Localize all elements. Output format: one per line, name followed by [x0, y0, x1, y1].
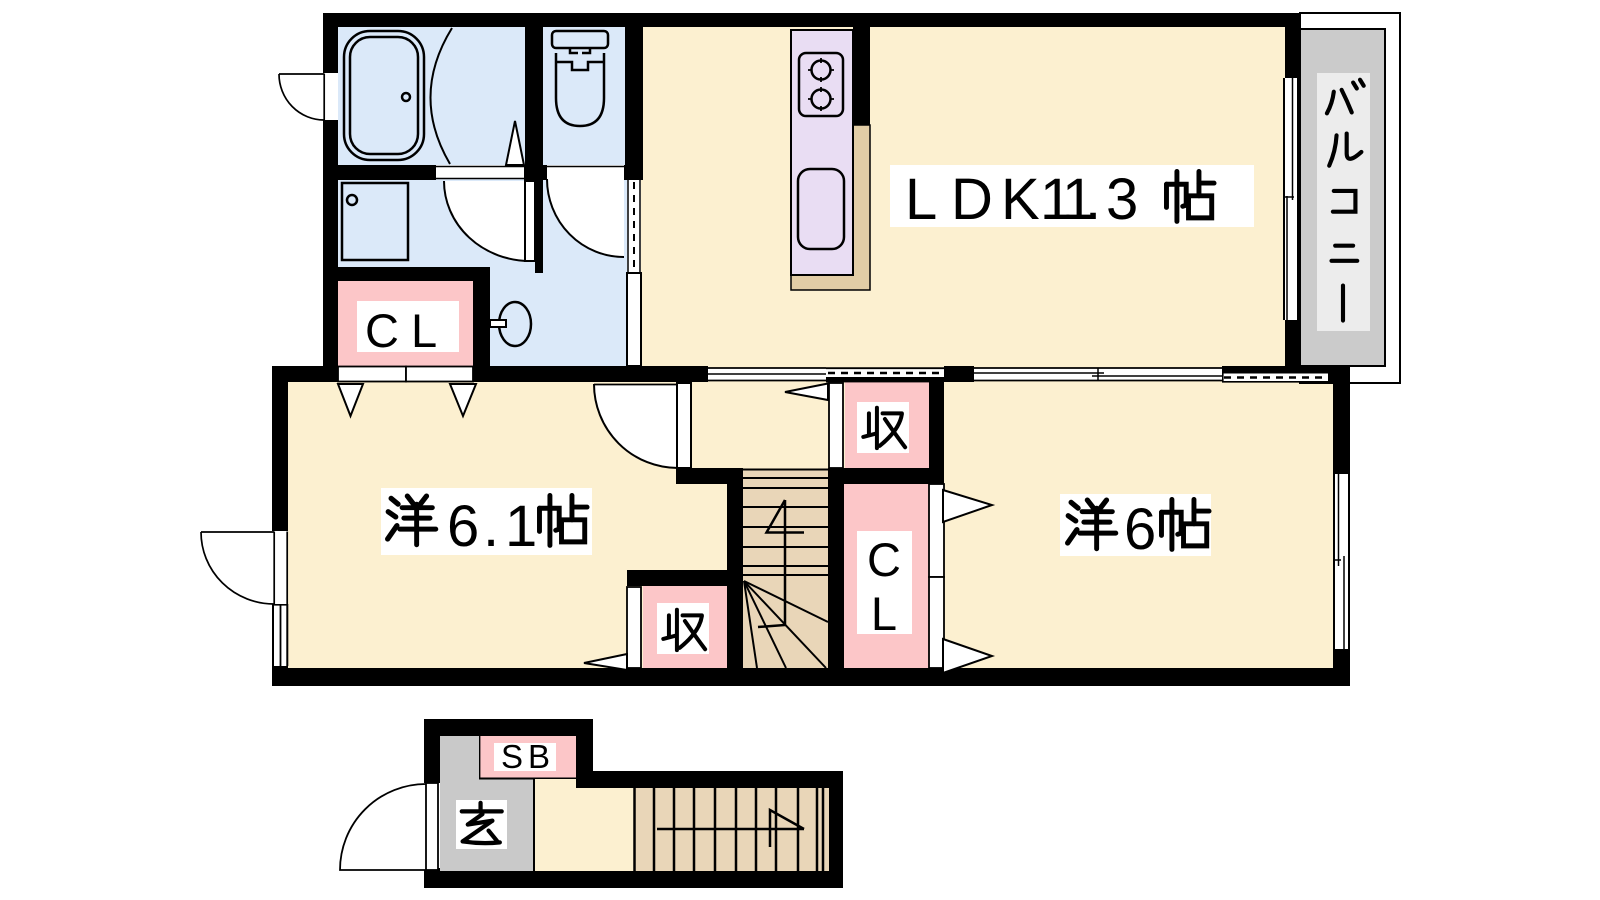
svg-text:C: C — [867, 533, 901, 586]
svg-text:.: . — [483, 494, 499, 559]
svg-text:3: 3 — [1106, 167, 1138, 232]
svg-text:L: L — [411, 304, 437, 357]
svg-text:.: . — [1085, 167, 1101, 232]
svg-text:D: D — [951, 167, 993, 232]
svg-text:L: L — [871, 587, 897, 640]
svg-text:S: S — [501, 738, 523, 775]
svg-text:1: 1 — [505, 494, 537, 559]
svg-text:6: 6 — [1124, 497, 1156, 562]
svg-text:B: B — [528, 738, 550, 775]
svg-text:6: 6 — [447, 494, 479, 559]
svg-text:C: C — [365, 304, 399, 357]
svg-text:L: L — [905, 167, 937, 232]
svg-text:K: K — [1001, 167, 1040, 232]
